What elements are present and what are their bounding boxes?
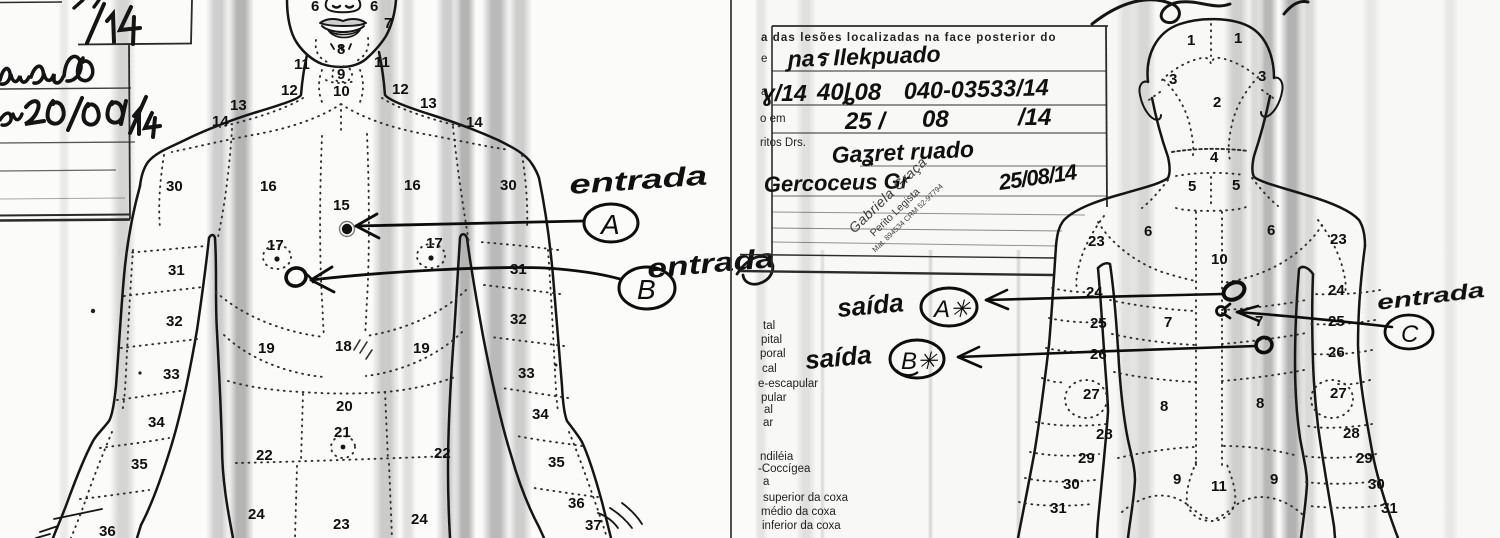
svg-text:saída: saída bbox=[836, 287, 905, 323]
svg-text:31: 31 bbox=[1050, 500, 1067, 517]
svg-text:26: 26 bbox=[1328, 344, 1345, 361]
svg-text:4: 4 bbox=[1210, 149, 1219, 166]
svg-text:34: 34 bbox=[148, 414, 165, 431]
svg-text:040-03533/14: 040-03533/14 bbox=[903, 74, 1049, 104]
svg-text:37: 37 bbox=[585, 517, 602, 534]
svg-text:30: 30 bbox=[1063, 476, 1080, 493]
svg-text:30: 30 bbox=[166, 178, 183, 195]
svg-text:31: 31 bbox=[510, 261, 527, 278]
svg-text:A: A bbox=[599, 209, 620, 240]
svg-text:36: 36 bbox=[99, 523, 116, 538]
svg-text:superior da coxa: superior da coxa bbox=[763, 492, 849, 504]
svg-text:ɲaร Ilekpuado: ɲaร Ilekpuado bbox=[783, 41, 941, 72]
svg-text:31: 31 bbox=[168, 262, 185, 279]
svg-text:2: 2 bbox=[1213, 94, 1221, 111]
svg-text:27: 27 bbox=[1330, 385, 1347, 402]
svg-text:5: 5 bbox=[1188, 178, 1196, 195]
svg-text:a: a bbox=[763, 476, 770, 488]
svg-text:15: 15 bbox=[333, 197, 350, 214]
svg-text:29: 29 bbox=[1356, 450, 1373, 467]
svg-text:23: 23 bbox=[1088, 233, 1105, 250]
svg-text:30: 30 bbox=[1368, 476, 1385, 493]
svg-text:28: 28 bbox=[1343, 425, 1360, 442]
svg-text:11: 11 bbox=[374, 54, 390, 71]
svg-text:22: 22 bbox=[434, 445, 451, 462]
svg-text:saída: saída bbox=[804, 339, 873, 375]
svg-text:25: 25 bbox=[1090, 315, 1107, 332]
svg-text:A✳: A✳ bbox=[932, 296, 972, 323]
svg-text:/14: /14 bbox=[1017, 104, 1051, 131]
svg-text:pital: pital bbox=[761, 334, 782, 346]
svg-text:6: 6 bbox=[370, 0, 378, 15]
svg-text:6: 6 bbox=[1144, 223, 1152, 240]
svg-text:24: 24 bbox=[411, 511, 428, 528]
svg-text:23: 23 bbox=[333, 516, 350, 533]
svg-text:25 /: 25 / bbox=[844, 108, 887, 135]
svg-text:13: 13 bbox=[420, 95, 437, 112]
svg-text:18: 18 bbox=[335, 338, 352, 355]
svg-text:7: 7 bbox=[1164, 314, 1172, 331]
svg-text:40ȴ08: 40ȴ08 bbox=[816, 79, 882, 106]
svg-text:cal: cal bbox=[762, 363, 777, 375]
svg-text:26: 26 bbox=[1090, 346, 1107, 363]
svg-text:28: 28 bbox=[1096, 426, 1113, 443]
svg-text:08: 08 bbox=[922, 106, 949, 133]
svg-text:e-escapular: e-escapular bbox=[758, 378, 818, 390]
svg-text:19: 19 bbox=[413, 340, 430, 357]
svg-text:6: 6 bbox=[1267, 222, 1275, 239]
svg-text:ritos Drs.: ritos Drs. bbox=[760, 137, 806, 149]
svg-text:B✳: B✳ bbox=[901, 348, 939, 375]
svg-text:17: 17 bbox=[426, 235, 443, 252]
svg-text:33: 33 bbox=[518, 365, 535, 382]
svg-text:30: 30 bbox=[500, 177, 517, 194]
svg-text:35: 35 bbox=[131, 456, 148, 473]
svg-text:3: 3 bbox=[1169, 71, 1177, 88]
svg-text:12: 12 bbox=[281, 82, 298, 99]
svg-text:7: 7 bbox=[384, 15, 392, 32]
svg-text:8: 8 bbox=[337, 41, 345, 58]
svg-text:34: 34 bbox=[532, 406, 549, 423]
svg-text:1: 1 bbox=[1234, 30, 1242, 47]
svg-text:-Coccígea: -Coccígea bbox=[758, 463, 811, 475]
svg-text:o em: o em bbox=[760, 113, 786, 125]
svg-text:ndiléia: ndiléia bbox=[760, 451, 794, 463]
svg-text:19: 19 bbox=[258, 340, 275, 357]
svg-text:29: 29 bbox=[1078, 450, 1095, 467]
svg-text:23: 23 bbox=[1330, 231, 1347, 248]
svg-text:13: 13 bbox=[230, 97, 247, 114]
svg-text:24: 24 bbox=[248, 506, 265, 523]
svg-text:3: 3 bbox=[1258, 68, 1266, 85]
svg-text:6: 6 bbox=[311, 0, 319, 15]
svg-text:B: B bbox=[637, 274, 656, 305]
svg-text:21: 21 bbox=[334, 424, 351, 441]
svg-text:ar: ar bbox=[763, 417, 773, 429]
svg-text:27: 27 bbox=[1083, 386, 1100, 403]
svg-text:8: 8 bbox=[1256, 395, 1264, 412]
svg-text:inferior da coxa: inferior da coxa bbox=[762, 520, 841, 532]
svg-text:11: 11 bbox=[294, 56, 310, 73]
svg-text:médio da coxa: médio da coxa bbox=[761, 506, 836, 518]
svg-text:e: e bbox=[761, 53, 767, 65]
svg-text:5: 5 bbox=[1232, 177, 1240, 194]
svg-text:8: 8 bbox=[1160, 398, 1168, 415]
svg-text:9: 9 bbox=[337, 66, 345, 83]
svg-text:12: 12 bbox=[392, 81, 409, 98]
svg-text:36: 36 bbox=[568, 495, 585, 512]
svg-text:14: 14 bbox=[466, 114, 483, 131]
svg-text:9: 9 bbox=[1173, 471, 1181, 488]
svg-text:14: 14 bbox=[212, 113, 229, 130]
svg-text:32: 32 bbox=[166, 313, 183, 330]
svg-text:35: 35 bbox=[548, 454, 565, 471]
svg-text:24: 24 bbox=[1328, 282, 1345, 299]
svg-text:16: 16 bbox=[260, 178, 277, 195]
svg-text:poral: poral bbox=[760, 348, 786, 360]
svg-text:33: 33 bbox=[163, 366, 180, 383]
svg-text:17: 17 bbox=[267, 237, 284, 254]
svg-text:1: 1 bbox=[1187, 32, 1195, 49]
svg-text:31: 31 bbox=[1381, 500, 1398, 517]
svg-text:C: C bbox=[1401, 321, 1419, 348]
svg-text:10: 10 bbox=[1211, 251, 1228, 268]
svg-text:tal: tal bbox=[763, 320, 775, 332]
svg-text:16: 16 bbox=[404, 177, 421, 194]
svg-text:22: 22 bbox=[256, 447, 273, 464]
svg-text:ɣ/14: ɣ/14 bbox=[762, 80, 807, 106]
svg-text:32: 32 bbox=[510, 311, 527, 328]
svg-text:20: 20 bbox=[336, 398, 353, 415]
svg-text:11: 11 bbox=[1211, 478, 1227, 495]
svg-text:10: 10 bbox=[333, 83, 350, 100]
svg-text:9: 9 bbox=[1270, 471, 1278, 488]
svg-text:al: al bbox=[764, 404, 773, 416]
svg-text:pular: pular bbox=[761, 392, 787, 404]
